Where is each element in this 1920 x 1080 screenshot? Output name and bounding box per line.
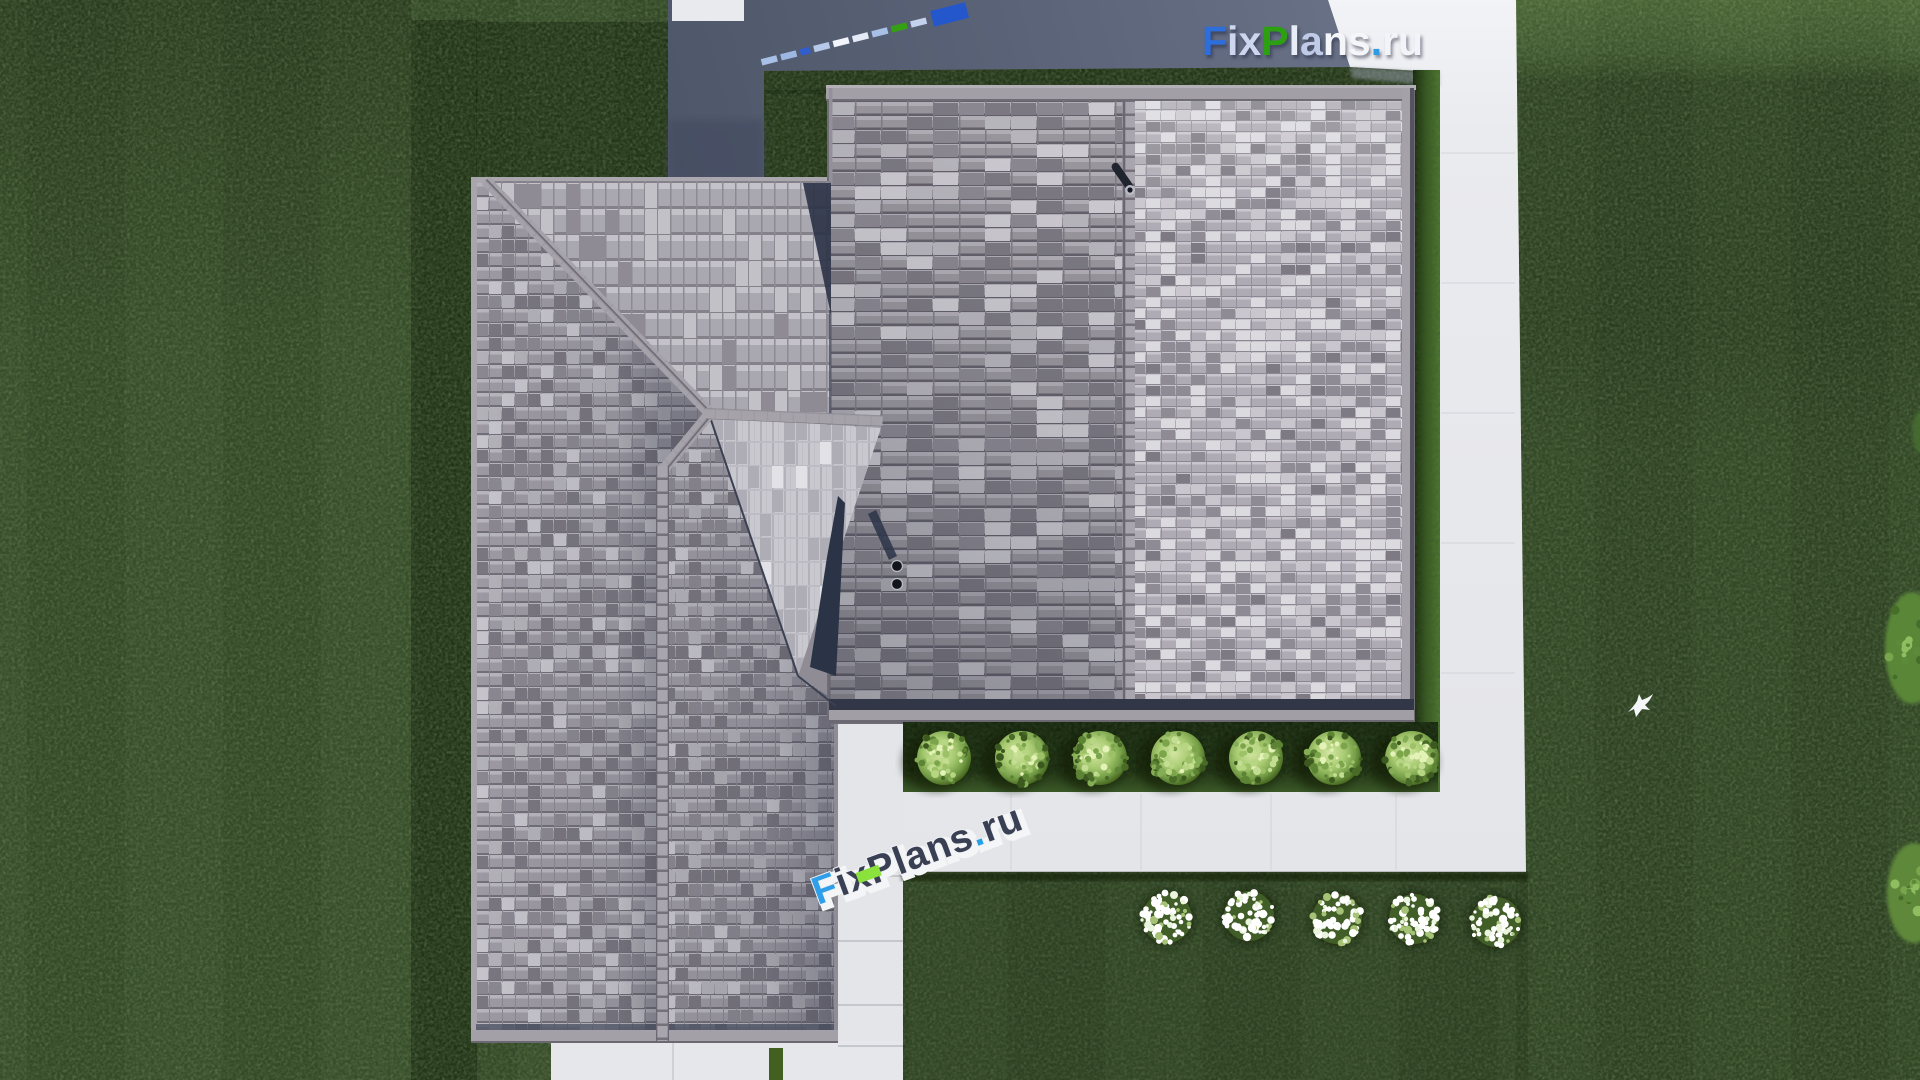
svg-text:FixPlans.ru: FixPlans.ru xyxy=(1202,18,1423,64)
